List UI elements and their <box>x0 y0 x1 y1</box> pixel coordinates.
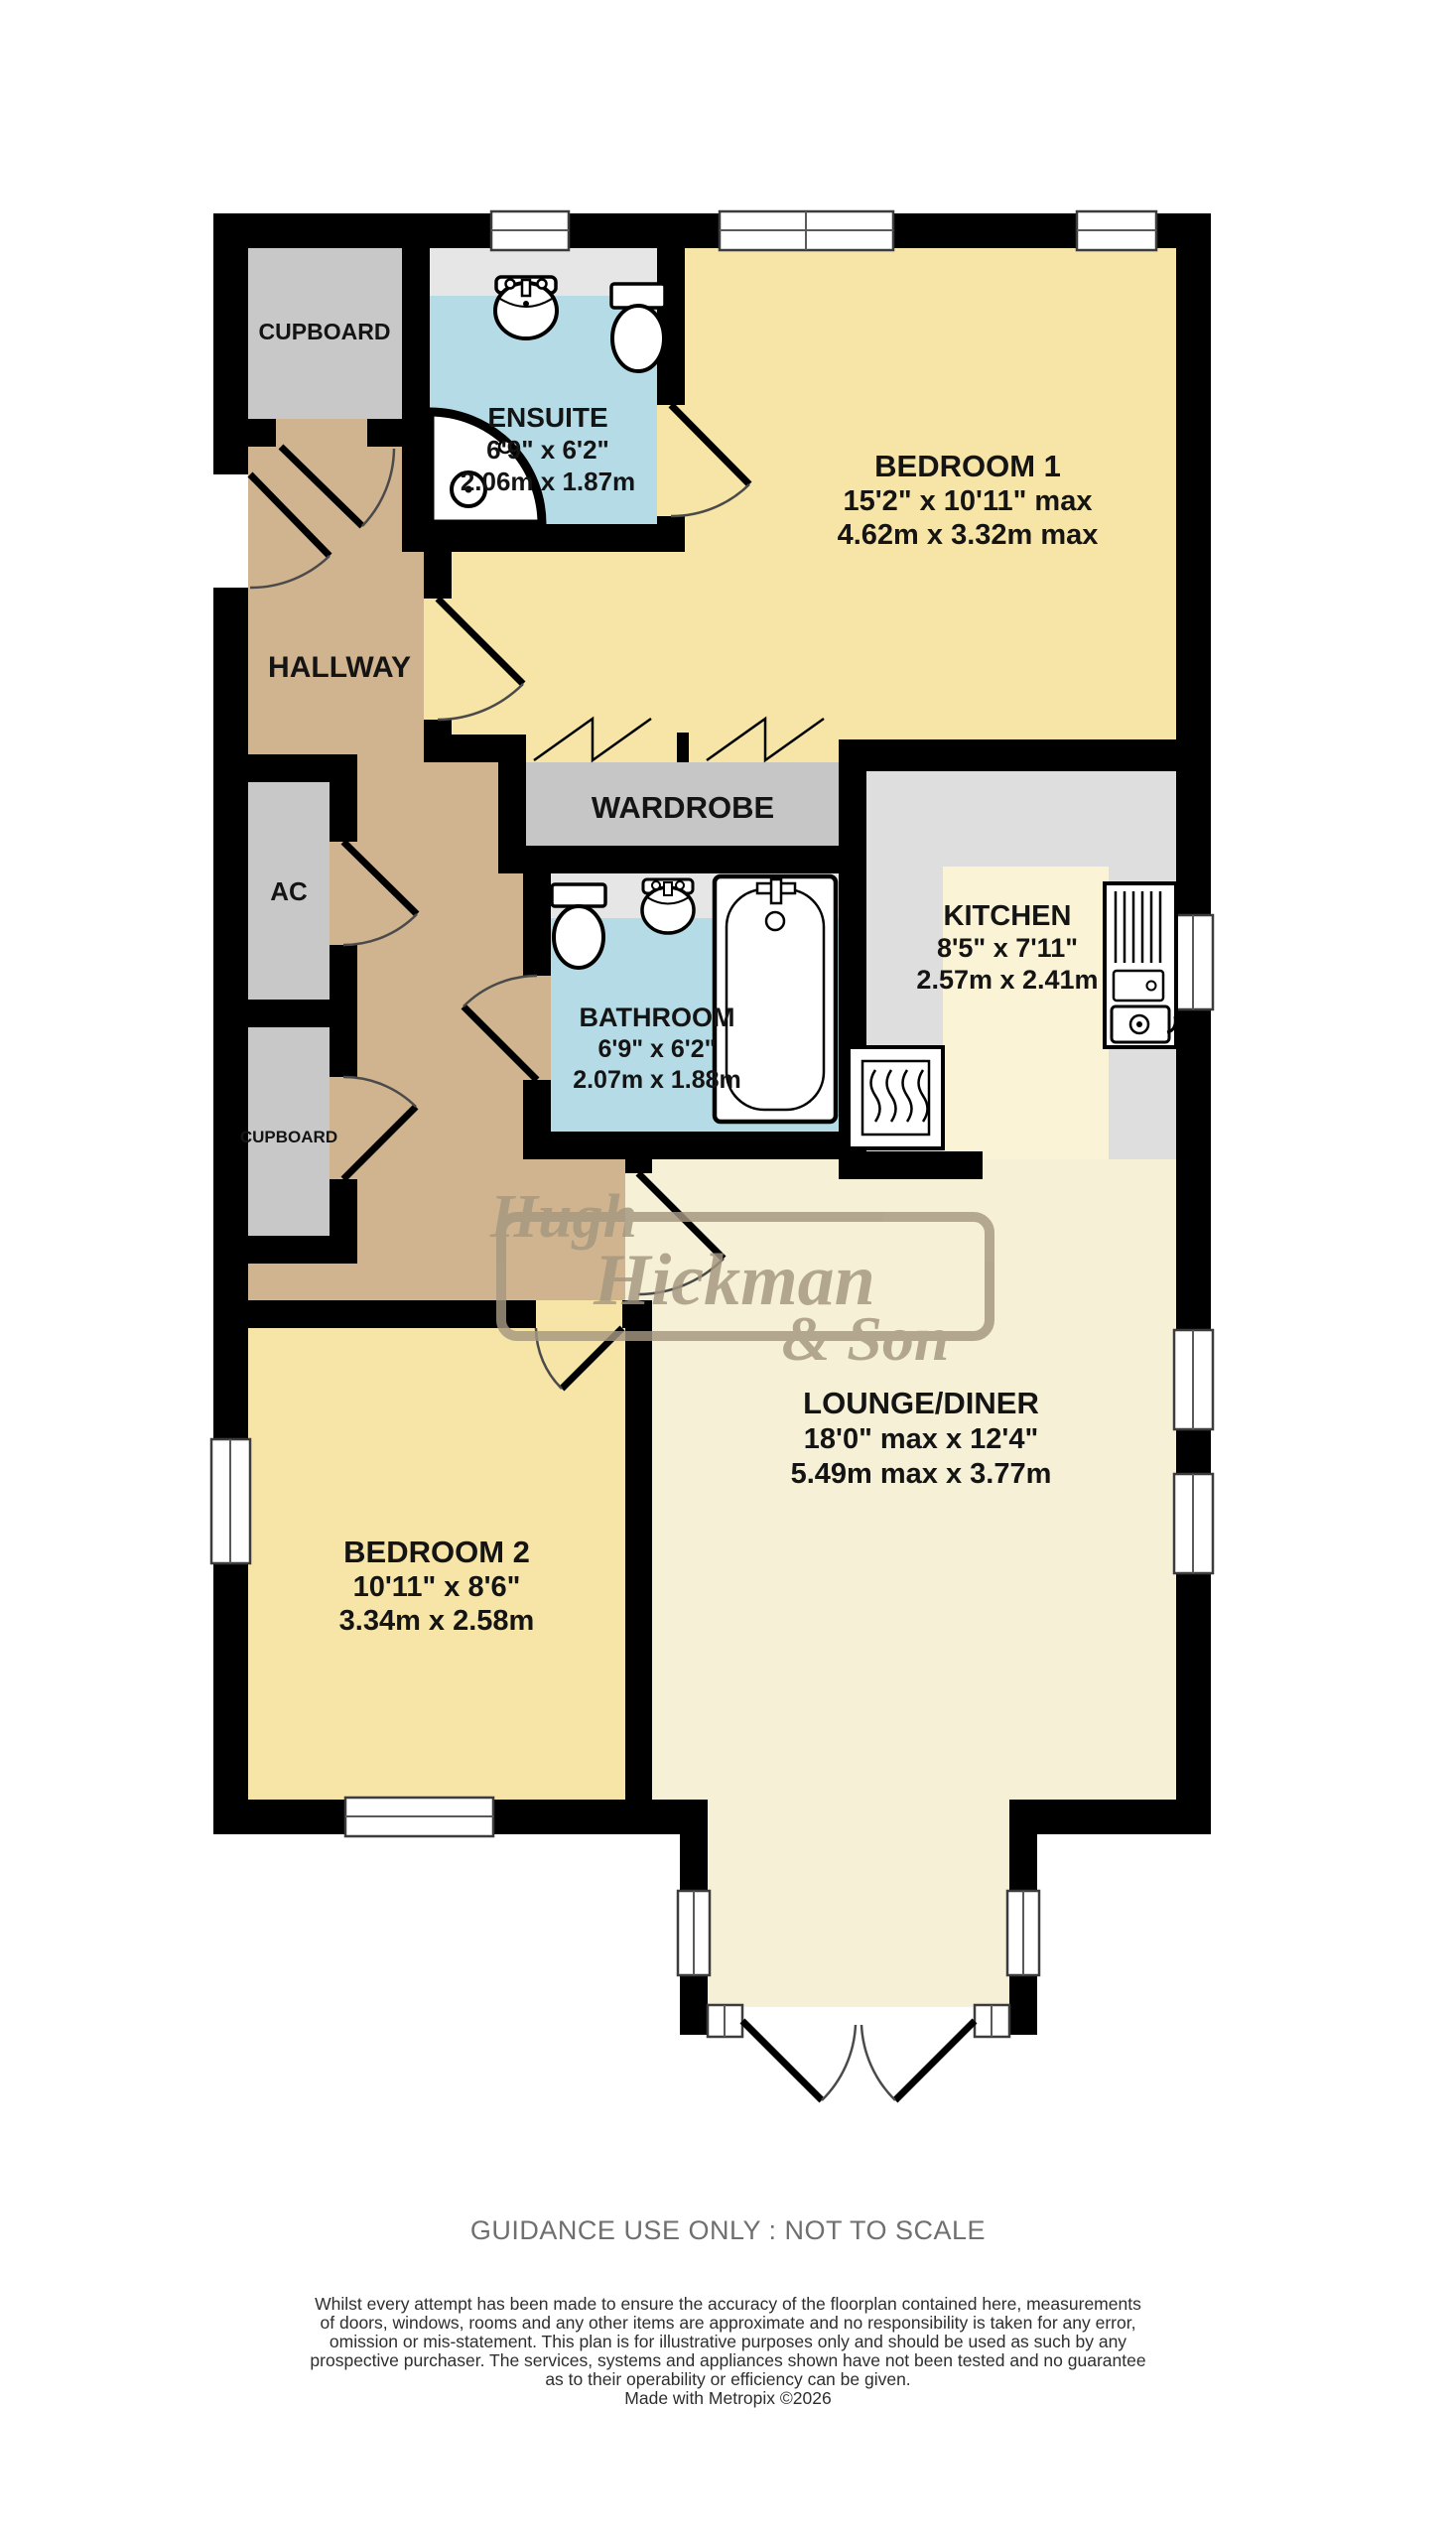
toilet-icon <box>552 884 605 968</box>
bedroom1-dims-imperial: 15'2" x 10'11" max <box>844 485 1093 517</box>
kitchen-label: KITCHEN <box>944 900 1072 932</box>
ensuite-label: ENSUITE <box>487 402 607 433</box>
window <box>720 211 893 250</box>
kitchen-sink-icon <box>1105 883 1176 1047</box>
disclaimer-line: of doors, windows, rooms and any other i… <box>0 2314 1456 2334</box>
disclaimer-line: as to their operability or efficiency ca… <box>0 2370 1456 2390</box>
disclaimer-line: prospective purchaser. The services, sys… <box>0 2351 1456 2371</box>
window <box>1174 1474 1213 1573</box>
lounge-dims-imperial: 18'0" max x 12'4" <box>804 1423 1038 1455</box>
window <box>1174 1330 1213 1429</box>
disclaimer-line: Whilst every attempt has been made to en… <box>0 2295 1456 2315</box>
kitchen-dims-imperial: 8'5" x 7'11" <box>937 933 1078 963</box>
disclaimer-line: omission or mis-statement. This plan is … <box>0 2333 1456 2352</box>
floorplan: Hugh Hickman & Son CUPBOARD ENSUITE 6'9"… <box>0 0 1456 2541</box>
window <box>211 1439 250 1563</box>
metropix-credit: Made with Metropix ©2026 <box>0 2389 1456 2409</box>
toilet-icon <box>611 284 665 371</box>
ensuite-dims-imperial: 6'9" x 6'2" <box>486 435 609 465</box>
cupboard-mid-label: CUPBOARD <box>240 1128 337 1146</box>
kitchen-dims-metric: 2.57m x 2.41m <box>916 965 1098 995</box>
heater-icon <box>849 1047 943 1148</box>
bathroom-label: BATHROOM <box>580 1003 735 1032</box>
bedroom1-dims-metric: 4.62m x 3.32m max <box>838 519 1099 551</box>
bedroom2-dims-imperial: 10'11" x 8'6" <box>353 1571 521 1603</box>
window <box>708 2005 742 2037</box>
bedroom1-floor-extension <box>452 552 839 762</box>
window <box>491 211 569 250</box>
bathroom-dims-metric: 2.07m x 1.88m <box>573 1066 741 1094</box>
wardrobe-label: WARDROBE <box>592 790 774 825</box>
window <box>975 2005 1009 2037</box>
window <box>1174 915 1213 1009</box>
hallway-label: HALLWAY <box>268 651 411 684</box>
cupboard-top-label: CUPBOARD <box>259 319 391 344</box>
window <box>1007 1891 1039 1975</box>
sink-icon <box>642 879 694 933</box>
bedroom2-label: BEDROOM 2 <box>343 1535 530 1569</box>
hallway-floor-upper <box>248 419 424 735</box>
watermark-line3: & Son <box>782 1303 950 1374</box>
bathroom-dims-imperial: 6'9" x 6'2" <box>597 1035 716 1063</box>
ac-label: AC <box>270 876 308 906</box>
window <box>1077 211 1156 250</box>
ensuite-dims-metric: 2.06m x 1.87m <box>461 467 635 496</box>
lounge-label: LOUNGE/DINER <box>803 1386 1039 1420</box>
window <box>678 1891 710 1975</box>
window <box>345 1798 493 1836</box>
lounge-dims-metric: 5.49m max x 3.77m <box>791 1458 1052 1490</box>
sink-icon <box>495 277 557 338</box>
bedroom1-label: BEDROOM 1 <box>874 449 1061 483</box>
lounge-bay-floor <box>708 1800 1009 2007</box>
bedroom2-dims-metric: 3.34m x 2.58m <box>339 1605 535 1637</box>
guidance-note: GUIDANCE USE ONLY : NOT TO SCALE <box>0 2215 1456 2246</box>
